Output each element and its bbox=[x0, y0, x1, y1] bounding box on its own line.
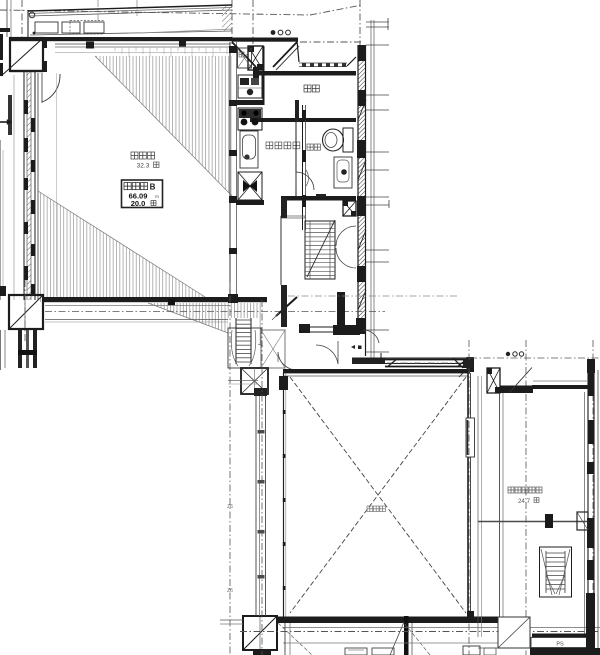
svg-text:32.3: 32.3 bbox=[137, 163, 150, 170]
svg-text:m: m bbox=[155, 194, 159, 199]
svg-text:PS: PS bbox=[556, 642, 564, 648]
svg-text:20.0: 20.0 bbox=[131, 199, 146, 208]
svg-text:24.7: 24.7 bbox=[518, 498, 531, 505]
svg-text:Z6: Z6 bbox=[227, 504, 233, 510]
svg-text:Z6: Z6 bbox=[227, 588, 233, 594]
svg-text:B: B bbox=[150, 183, 156, 192]
